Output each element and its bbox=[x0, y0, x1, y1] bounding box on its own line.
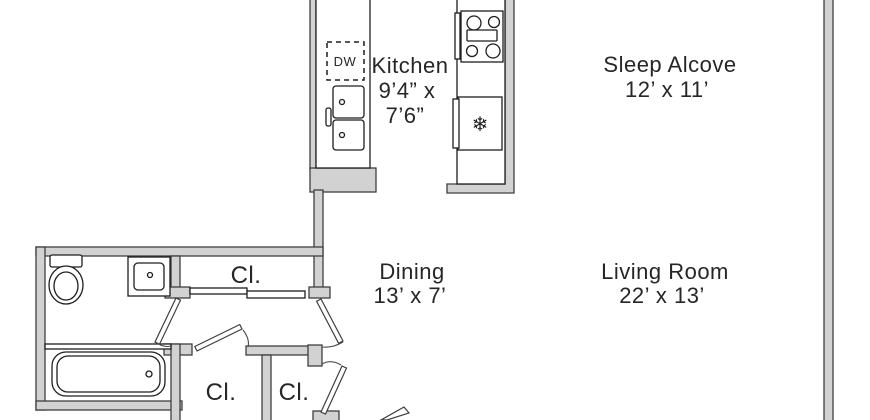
sink-basin-upper bbox=[333, 86, 364, 118]
wall-bath-left bbox=[36, 247, 45, 410]
living-room-label: Living Room bbox=[601, 259, 729, 284]
tub-drain bbox=[146, 371, 152, 377]
hall-door bbox=[317, 299, 343, 347]
closet-lower-left-label: Cl. bbox=[206, 379, 237, 406]
refrigerator-door-handle bbox=[453, 99, 459, 148]
wall-closet-tee-jamb bbox=[308, 345, 322, 366]
kitchen-label: Kitchen bbox=[372, 53, 449, 78]
snowflake-icon: ❄ bbox=[472, 112, 489, 136]
burner-top-right bbox=[489, 17, 500, 28]
closet-left-door bbox=[195, 325, 249, 352]
stove-control-panel bbox=[467, 30, 497, 41]
wall-bath-right-upper bbox=[171, 256, 180, 289]
sleep-alcove-label: Sleep Alcove bbox=[603, 52, 736, 77]
dining-label: Dining bbox=[379, 259, 444, 284]
tub-inner bbox=[57, 356, 160, 392]
bathroom-door bbox=[155, 298, 181, 347]
closet-right-door bbox=[321, 362, 347, 414]
sink-basin-lower bbox=[333, 120, 364, 150]
toilet bbox=[49, 255, 83, 304]
bathroom-door-leaf bbox=[155, 298, 181, 344]
wall-kitchen-block bbox=[310, 168, 376, 192]
closet-lower-right-label: Cl. bbox=[279, 379, 310, 406]
vanity-drain bbox=[148, 273, 153, 278]
wall-bath-bottom bbox=[36, 401, 182, 410]
entry-door-leaf bbox=[381, 407, 409, 420]
wall-kitchen-left bbox=[310, 0, 316, 170]
closet-left-door-arc bbox=[243, 330, 248, 347]
floor-plan: DW ❄ bbox=[0, 0, 870, 420]
closet-hall-label: Cl. bbox=[231, 262, 262, 289]
tub-alcove-wall bbox=[45, 344, 171, 349]
wall-bath-right-lower bbox=[171, 344, 180, 420]
oven-door-handle bbox=[455, 13, 460, 59]
toilet-bowl-inner bbox=[54, 272, 78, 300]
closet-left-door-leaf bbox=[195, 325, 242, 352]
wall-closet-tee-stem bbox=[262, 355, 271, 420]
toilet-tank bbox=[50, 255, 82, 267]
hall-door-leaf bbox=[317, 299, 343, 343]
closet-sliding-doors bbox=[190, 288, 305, 298]
dishwasher-label: DW bbox=[334, 54, 357, 69]
sliding-door-right-panel bbox=[247, 291, 305, 298]
burner-top-left bbox=[467, 16, 481, 30]
wall-hall-vertical bbox=[314, 190, 323, 288]
closet-right-door-arc bbox=[322, 362, 341, 365]
sleep-alcove-dimensions: 12’ x 11’ bbox=[625, 77, 709, 102]
stove bbox=[455, 11, 503, 62]
wall-hall-jamb bbox=[309, 287, 330, 298]
kitchen-dimensions-line1: 9’4” x bbox=[379, 78, 436, 103]
bathtub bbox=[52, 352, 165, 396]
bathroom-sink bbox=[128, 257, 170, 296]
kitchen-dimensions-line2: 7’6” bbox=[386, 103, 425, 128]
sink-drain-lower bbox=[340, 133, 345, 138]
dining-dimensions: 13’ x 7’ bbox=[374, 283, 447, 308]
closet-right-door-leaf bbox=[321, 366, 347, 414]
refrigerator: ❄ bbox=[453, 97, 502, 150]
living-room-dimensions: 22’ x 13’ bbox=[619, 283, 705, 308]
burner-bottom-right bbox=[486, 44, 500, 58]
wall-right-exterior bbox=[824, 0, 833, 420]
burner-bottom-left bbox=[467, 46, 478, 57]
sink-faucet-handle bbox=[326, 108, 331, 126]
sink-drain-upper bbox=[340, 100, 345, 105]
